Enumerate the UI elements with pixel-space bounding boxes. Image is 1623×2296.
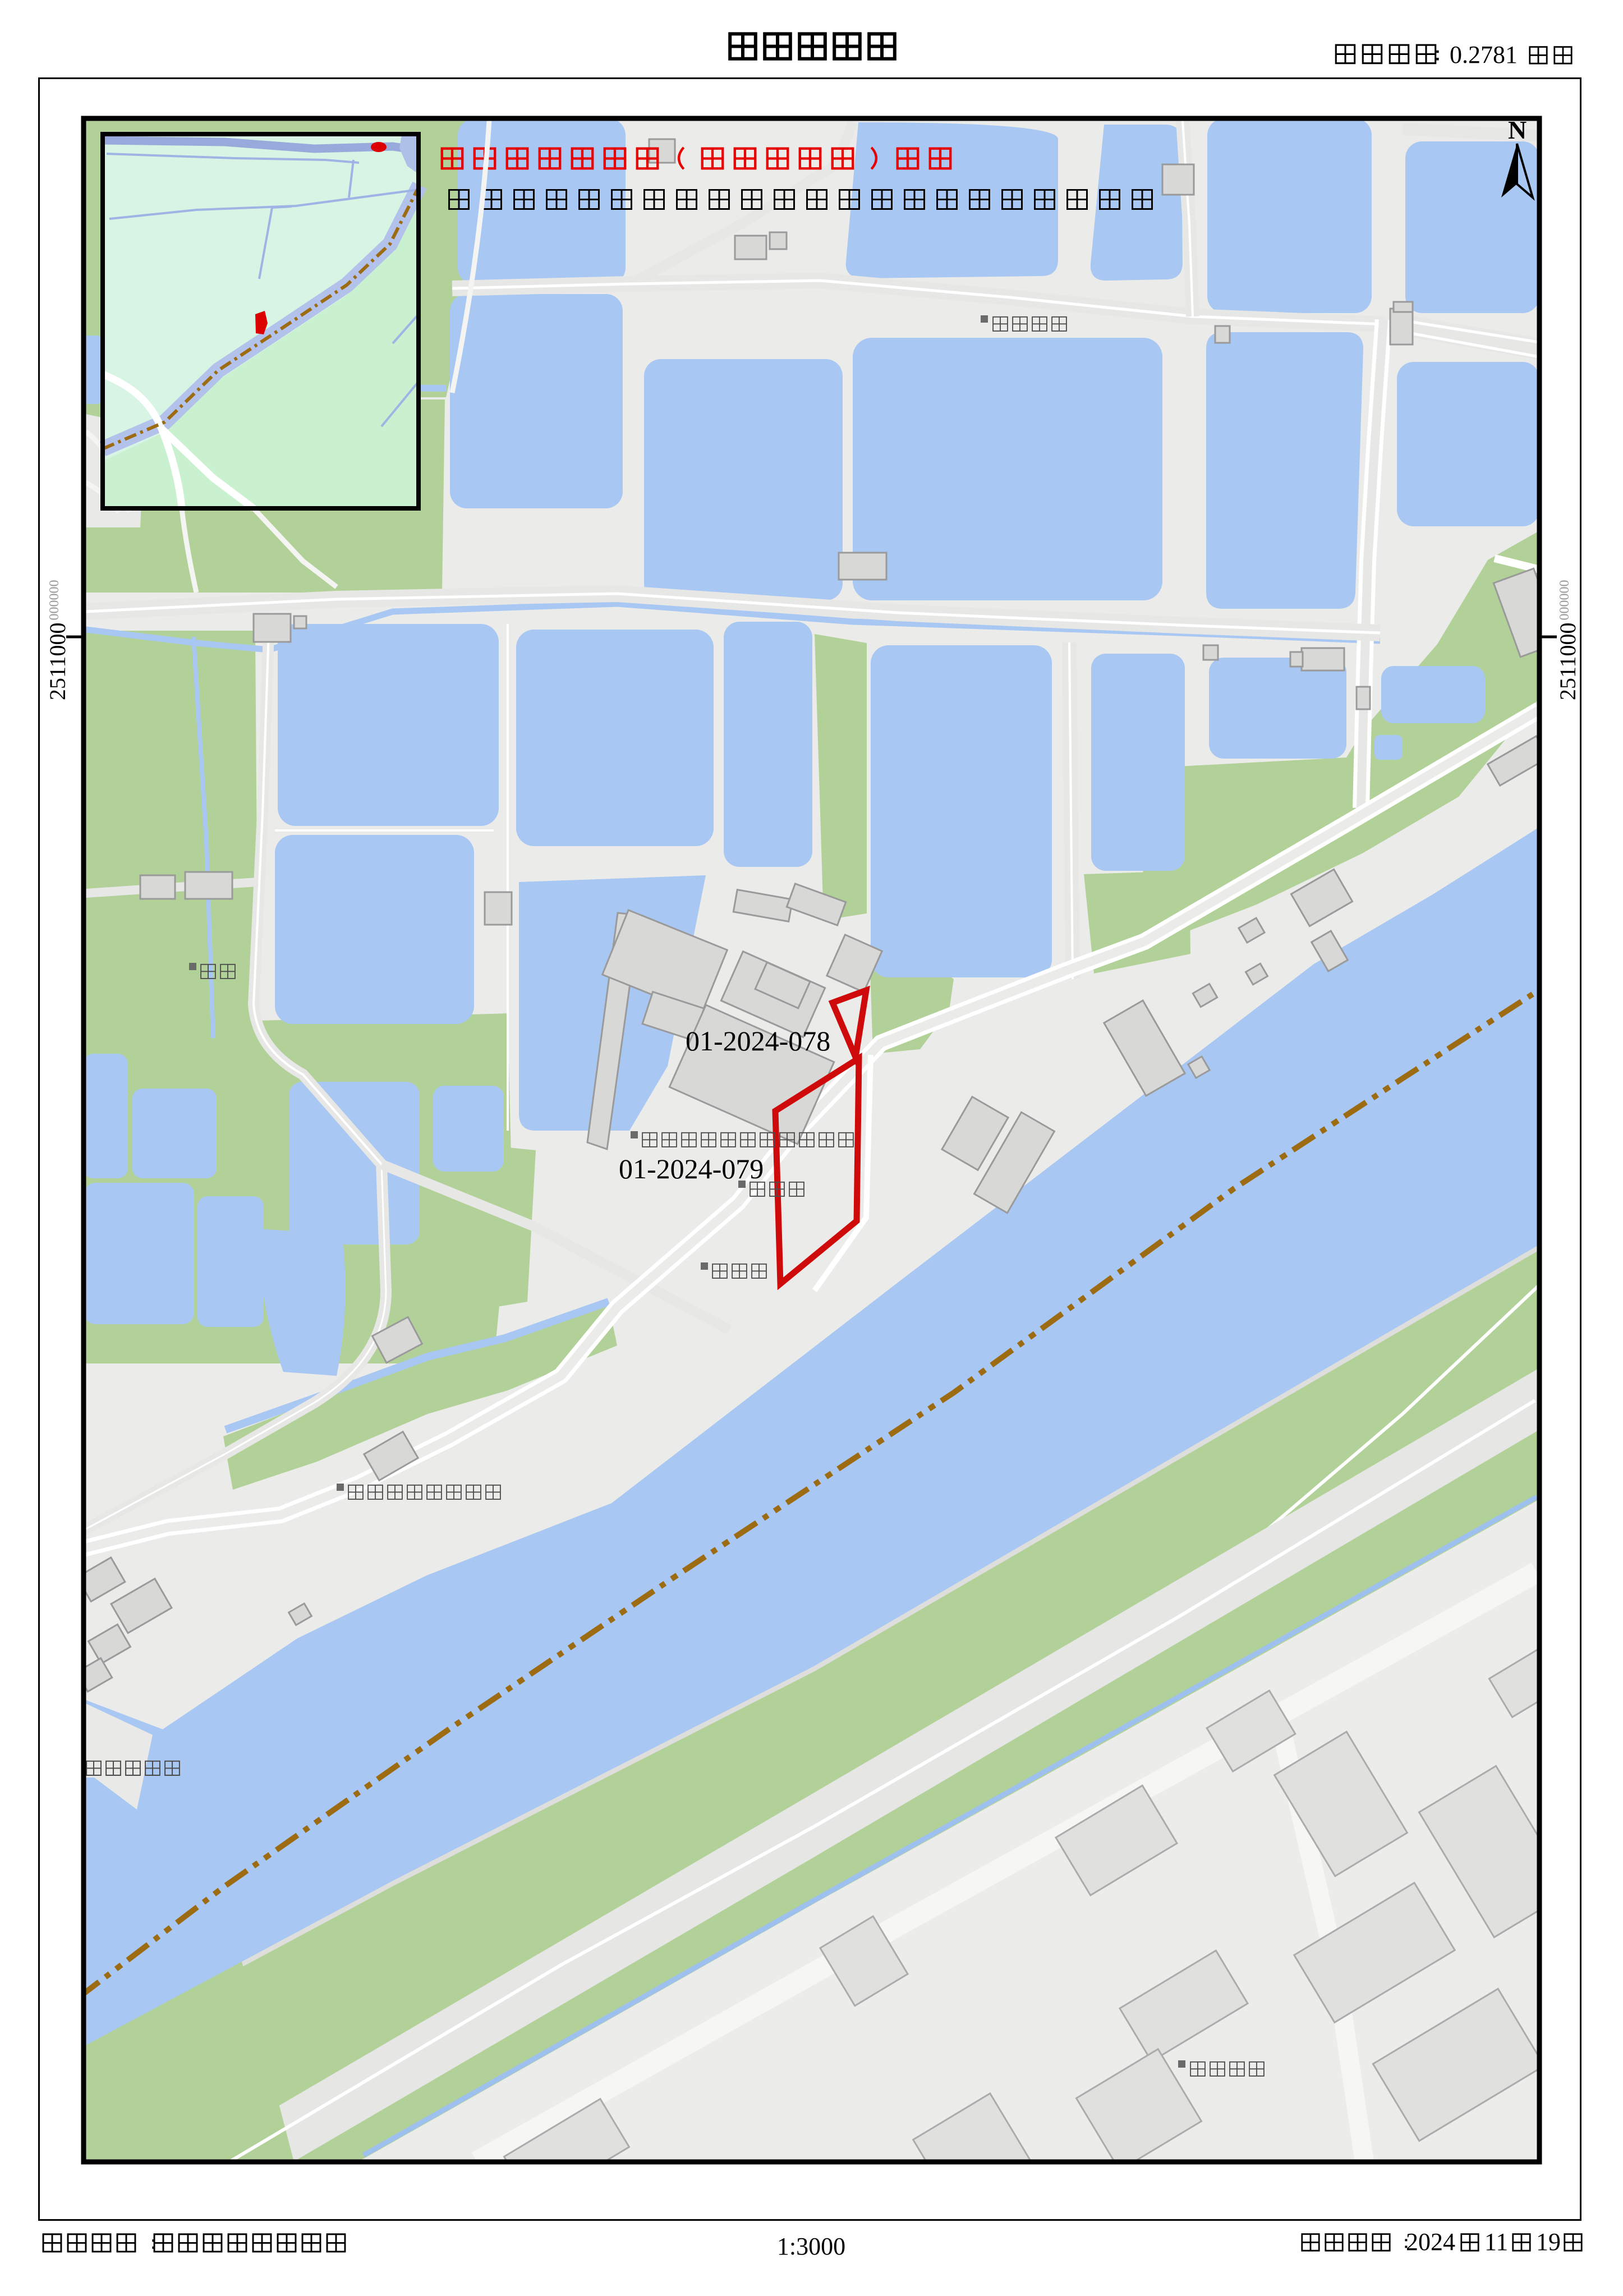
svg-text:01-2024-078: 01-2024-078 <box>686 1025 830 1057</box>
svg-text:01-2024-079: 01-2024-079 <box>619 1153 764 1184</box>
svg-text:0.2781: 0.2781 <box>1450 41 1518 68</box>
svg-text:1:3000: 1:3000 <box>777 2233 845 2260</box>
svg-text:2024: 2024 <box>1406 2228 1455 2256</box>
svg-text:19: 19 <box>1536 2228 1561 2256</box>
svg-text:11: 11 <box>1484 2228 1508 2256</box>
